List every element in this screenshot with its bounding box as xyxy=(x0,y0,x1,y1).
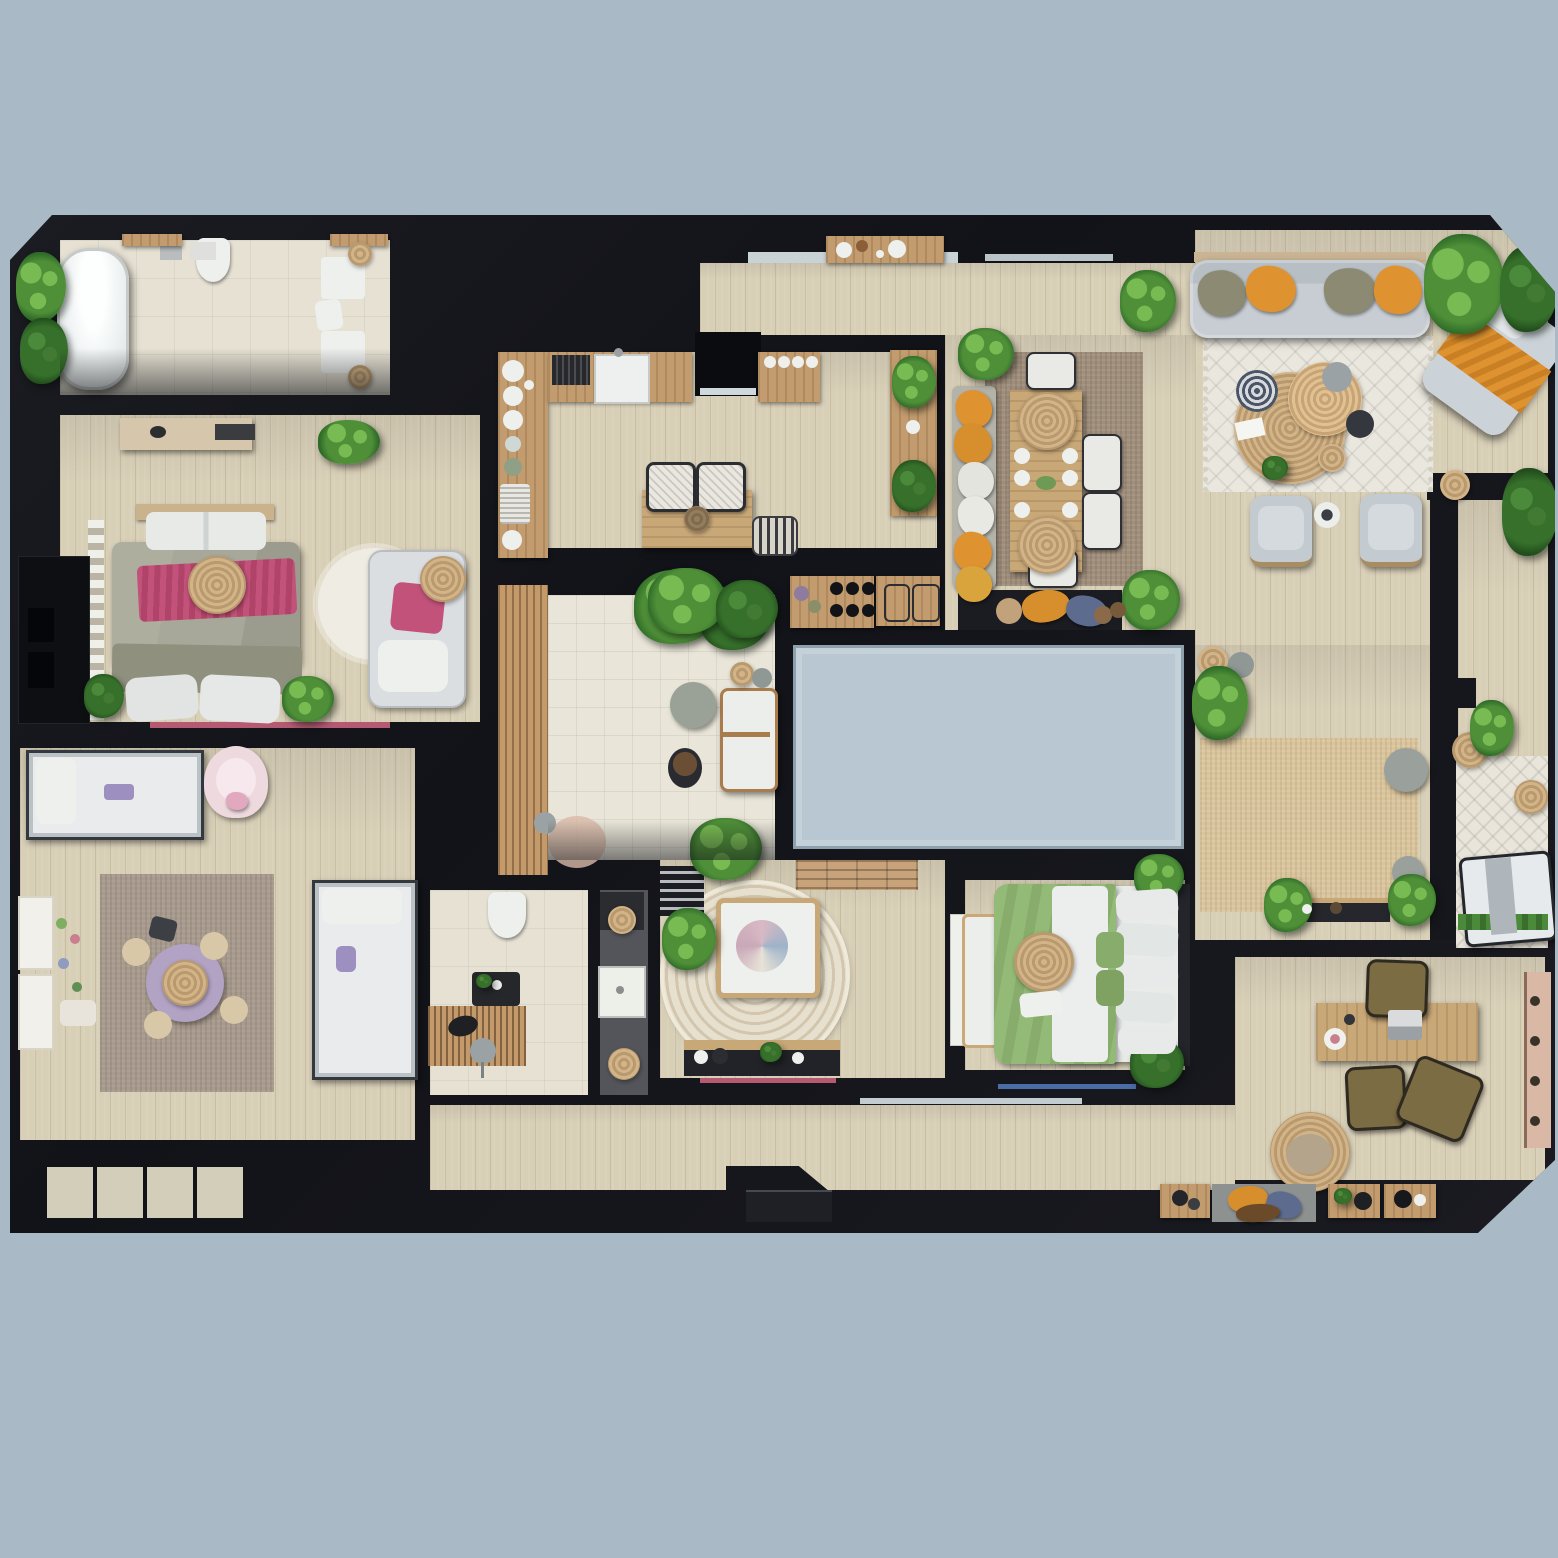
kitchen-sink xyxy=(594,354,650,404)
dining-chair-head-top xyxy=(1026,352,1076,390)
kitchen-window-block xyxy=(695,332,761,396)
plate-setting-2 xyxy=(1014,470,1030,486)
console1-item xyxy=(1188,1198,1200,1210)
console-bowl-1 xyxy=(836,242,852,258)
side-tray-gray xyxy=(1322,362,1352,392)
storage-tile-2 xyxy=(97,1167,143,1218)
table-centerpiece xyxy=(1036,476,1056,490)
coffee-table-small xyxy=(1318,444,1346,472)
towel-rail xyxy=(122,234,182,246)
nursery-brick-strip xyxy=(796,860,918,890)
outdoor-sofa xyxy=(720,688,778,792)
shelf-item-b xyxy=(1530,1036,1540,1046)
closet-shelf-1 xyxy=(28,608,54,642)
plate-setting-5 xyxy=(1014,502,1030,518)
brown-plate-2 xyxy=(1110,602,1126,618)
plate-2 xyxy=(503,386,523,406)
window-light xyxy=(700,388,756,395)
bed-pillows xyxy=(146,512,266,550)
green-bed-headboard xyxy=(1178,884,1190,1066)
bowl xyxy=(502,530,522,550)
shelf-item-d xyxy=(1530,1116,1540,1126)
bath2-basket-2 xyxy=(608,1048,640,1080)
kids-bed-pillow xyxy=(36,758,76,824)
desk-mug xyxy=(1324,1028,1346,1050)
daybed-cushion xyxy=(378,640,448,692)
patio-planter-1 xyxy=(730,662,754,686)
closet-shelf-2 xyxy=(28,652,54,688)
kids-bed2-pillow xyxy=(322,888,402,924)
plate-3 xyxy=(503,410,523,430)
side-tray-blue xyxy=(1236,370,1278,412)
green-pillow-white-3 xyxy=(1115,957,1178,989)
console3-item-2 xyxy=(1414,1194,1426,1206)
dining-chair-right-2 xyxy=(1082,492,1122,550)
shelf-item-2 xyxy=(190,242,216,260)
vessel-sink-1 xyxy=(348,242,372,266)
gray-pouf-1 xyxy=(1384,748,1428,792)
towel xyxy=(314,298,344,331)
bench-pillow-white-1 xyxy=(958,462,994,500)
kitchen-chair-1 xyxy=(646,462,696,512)
green-pillow-white-5 xyxy=(1118,1026,1176,1054)
office-guest-chair-1 xyxy=(1344,1064,1407,1131)
hall-console-item xyxy=(1302,904,1312,914)
skylight-panel xyxy=(793,645,1184,849)
storage-tile-1 xyxy=(47,1167,93,1218)
toy-shelf-1 xyxy=(18,896,54,970)
pink-mini-pillow xyxy=(226,792,248,810)
green-bowl xyxy=(504,458,522,476)
pendant-lamp-1 xyxy=(1018,392,1076,450)
armchair-1-cushion xyxy=(1258,506,1304,550)
tan-cushion xyxy=(996,598,1022,624)
console3-item xyxy=(1394,1190,1412,1208)
vessel-sink-2 xyxy=(348,365,372,389)
terrace-wall-jog xyxy=(1458,678,1476,708)
console-bowl-3 xyxy=(888,240,906,258)
jar-2 xyxy=(778,356,790,368)
jar-1 xyxy=(764,356,776,368)
patio-pot-plant xyxy=(668,748,702,788)
crown-pillow xyxy=(104,784,134,800)
side-table xyxy=(1314,502,1340,528)
green-bed-jute-decor xyxy=(1014,932,1074,992)
hall-window-line xyxy=(985,254,1113,261)
plate-setting-6 xyxy=(1062,502,1078,518)
plate-setting-1 xyxy=(1014,448,1030,464)
olive-bowl xyxy=(808,600,821,613)
toy-1 xyxy=(56,918,67,929)
console1-basket xyxy=(1172,1190,1188,1206)
pouf-3 xyxy=(220,996,248,1024)
green-pillow-1 xyxy=(1096,932,1124,968)
armchair-2-cushion xyxy=(1368,504,1414,550)
floor-plan-render xyxy=(0,0,1558,1558)
burner-1 xyxy=(830,582,843,595)
pouf-1 xyxy=(122,938,150,966)
tray-2 xyxy=(912,584,940,622)
terrace-pot xyxy=(1440,470,1470,500)
faucet xyxy=(614,348,623,357)
green-pillow-white-1 xyxy=(1115,888,1179,922)
burner-4 xyxy=(830,604,843,617)
purple-toy xyxy=(336,946,356,972)
burner-3 xyxy=(862,582,875,595)
bath2-basket-1 xyxy=(608,906,636,934)
console2-item xyxy=(1354,1192,1372,1210)
dresser-item xyxy=(150,426,166,438)
nursery-pink-line xyxy=(700,1078,836,1083)
daybed-jute xyxy=(420,556,466,602)
burner-5 xyxy=(846,604,859,617)
shelf-item-a xyxy=(1530,996,1540,1006)
console-bowl-2 xyxy=(856,240,868,252)
side-tray-dark xyxy=(1346,410,1374,438)
green-room-blue-line xyxy=(998,1084,1136,1089)
toy-shelf-2 xyxy=(18,974,54,1050)
patio-planter-2 xyxy=(752,668,772,688)
bathtub xyxy=(57,248,129,390)
toy-table xyxy=(60,1000,96,1026)
bath2-soap xyxy=(492,980,502,990)
storage-tile-4 xyxy=(197,1167,243,1218)
kitchen-chair-2 xyxy=(696,462,746,512)
foot-pillow-1 xyxy=(125,674,200,723)
kitchen-left-counter xyxy=(498,352,548,558)
stool-leg xyxy=(481,1062,484,1078)
plate-stack xyxy=(500,484,530,524)
shower-stool xyxy=(470,1038,496,1064)
patio-table xyxy=(670,682,716,728)
dresser-item-2 xyxy=(215,424,255,440)
desk-item xyxy=(1344,1014,1355,1025)
swirl-blanket xyxy=(736,920,788,972)
purple-bowl xyxy=(794,586,809,601)
pouf-4 xyxy=(144,1011,172,1039)
basket xyxy=(752,516,798,556)
patio-pink-rug xyxy=(548,816,606,868)
laptop xyxy=(1388,1010,1422,1040)
terrace-wall-vertical xyxy=(1430,500,1458,940)
hallway-floor xyxy=(430,1105,1235,1190)
outdoor-sofa-divider xyxy=(722,732,770,737)
counter-bowl xyxy=(906,420,920,434)
utensil-block xyxy=(552,355,590,385)
jute-pillow xyxy=(188,556,246,614)
foot-pillow-2 xyxy=(199,674,281,724)
toy-4 xyxy=(72,982,82,992)
nursery-console-item-2 xyxy=(712,1048,728,1064)
green-pillow-white-2 xyxy=(1115,922,1179,957)
nursery-console-item-3 xyxy=(792,1052,804,1064)
glass-bowl xyxy=(505,436,521,452)
play-mat-center xyxy=(162,960,208,1006)
toy-2 xyxy=(70,934,80,944)
plate-small xyxy=(524,380,534,390)
shelf-item-c xyxy=(1530,1076,1540,1086)
pouf-2 xyxy=(200,932,228,960)
green-pillow-white-4 xyxy=(1115,990,1177,1024)
green-pillow-2 xyxy=(1096,970,1124,1006)
pendant-lamp-2 xyxy=(1018,516,1076,574)
terrace-jute-2 xyxy=(1514,780,1548,814)
plate-setting-4 xyxy=(1062,470,1078,486)
toy-3 xyxy=(58,958,69,969)
jar-4 xyxy=(806,356,818,368)
storage-tile-3 xyxy=(147,1167,193,1218)
hall-console-item-2 xyxy=(1330,902,1342,914)
shower-drain xyxy=(616,986,624,994)
tray-1 xyxy=(884,584,910,622)
apartment-floor-plan xyxy=(0,0,1558,1558)
nursery-console-item-1 xyxy=(694,1050,708,1064)
green-bed-towel xyxy=(1019,990,1063,1018)
burner-2 xyxy=(846,582,859,595)
patio-stool xyxy=(534,812,556,834)
hallway-threshold-line xyxy=(860,1098,1082,1104)
plate-setting-3 xyxy=(1062,448,1078,464)
burner-6 xyxy=(862,604,875,617)
hall-wall-step xyxy=(746,1190,832,1222)
dining-chair-right-1 xyxy=(1082,434,1122,492)
plate-1 xyxy=(502,360,524,382)
table-mat xyxy=(684,506,710,532)
console-bowl-4 xyxy=(876,250,884,258)
jar-3 xyxy=(792,356,804,368)
bath2-toilet xyxy=(488,892,526,938)
